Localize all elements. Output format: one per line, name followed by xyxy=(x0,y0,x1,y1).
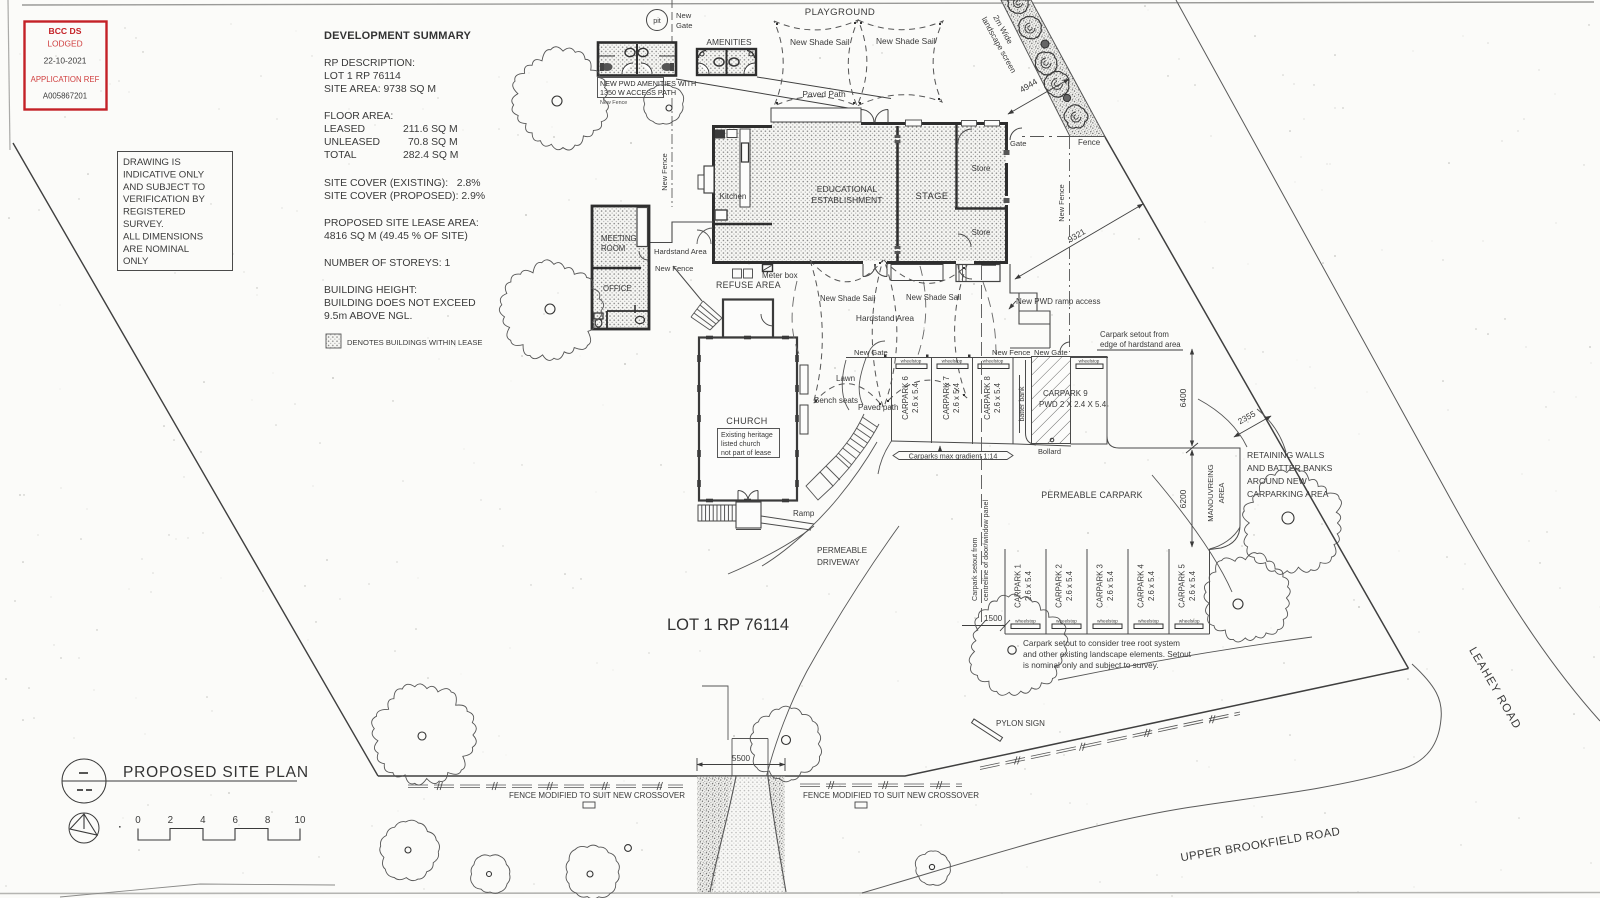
svg-text:ARE NOMINAL: ARE NOMINAL xyxy=(123,244,190,255)
svg-text:PERMEABLE: PERMEABLE xyxy=(817,546,868,555)
svg-text:2.6 x 5.4: 2.6 x 5.4 xyxy=(1106,570,1115,601)
svg-text:AMENITIES: AMENITIES xyxy=(706,37,752,47)
svg-text:Carparks max gradient 1:14: Carparks max gradient 1:14 xyxy=(909,452,998,461)
svg-text:EDUCATIONAL: EDUCATIONAL xyxy=(817,184,878,194)
svg-text:70.8 SQ M: 70.8 SQ M xyxy=(408,137,458,148)
svg-text:wheelstop: wheelstop xyxy=(942,359,963,364)
svg-text:CARPARK 6: CARPARK 6 xyxy=(901,376,910,420)
svg-text:MEETING: MEETING xyxy=(601,234,637,243)
svg-text:Hardstand Area: Hardstand Area xyxy=(856,313,915,323)
svg-text:BUILDING HEIGHT:: BUILDING HEIGHT: xyxy=(324,285,417,296)
svg-text:1500: 1500 xyxy=(984,614,1003,623)
svg-text:and other existing landscape e: and other existing landscape elements. S… xyxy=(1023,650,1192,659)
svg-text:CARPARK 4: CARPARK 4 xyxy=(1137,564,1146,608)
svg-text:211.6 SQ M: 211.6 SQ M xyxy=(403,124,458,135)
svg-text:DENOTES BUILDINGS WITHIN LEASE: DENOTES BUILDINGS WITHIN LEASE xyxy=(347,338,482,347)
svg-text:ESTABLISHMENT: ESTABLISHMENT xyxy=(812,195,884,205)
svg-text:FENCE MODIFIED TO SUIT NEW CRO: FENCE MODIFIED TO SUIT NEW CROSSOVER xyxy=(803,791,979,800)
svg-text:2: 2 xyxy=(168,815,173,826)
svg-text:listed church: listed church xyxy=(721,441,760,448)
svg-text:SITE AREA: 9738 SQ M: SITE AREA: 9738 SQ M xyxy=(324,84,436,95)
svg-text:10: 10 xyxy=(295,815,306,826)
svg-text:REFUSE AREA: REFUSE AREA xyxy=(716,280,781,290)
svg-text:CARPARK 1: CARPARK 1 xyxy=(1014,564,1023,608)
svg-text:LOT 1 RP 76114: LOT 1 RP 76114 xyxy=(667,616,789,634)
svg-text:Paved path: Paved path xyxy=(858,403,898,412)
svg-text:New Fence: New Fence xyxy=(600,100,627,106)
svg-text:Paved Path: Paved Path xyxy=(802,89,846,99)
svg-text:New Shade Sail: New Shade Sail xyxy=(790,37,850,47)
svg-text:wheelstop: wheelstop xyxy=(1097,619,1118,624)
svg-text:6400: 6400 xyxy=(1178,388,1188,407)
svg-text:AROUND NEW: AROUND NEW xyxy=(1247,476,1308,486)
svg-text:wheelstop: wheelstop xyxy=(1079,359,1100,364)
svg-text:New Fence: New Fence xyxy=(660,153,669,190)
svg-text:1350 W ACCESS PATH: 1350 W ACCESS PATH xyxy=(600,88,676,97)
svg-text:CARPARK 7: CARPARK 7 xyxy=(942,376,951,420)
svg-text:PWD 2 X 2.4 X 5.4: PWD 2 X 2.4 X 5.4 xyxy=(1039,400,1107,409)
svg-text:TOTAL: TOTAL xyxy=(324,150,357,161)
svg-text:Kitchen: Kitchen xyxy=(720,192,747,201)
svg-text:Meter box: Meter box xyxy=(762,271,798,280)
svg-text:2.6 x 5.4: 2.6 x 5.4 xyxy=(1188,570,1197,601)
svg-text:batter bank: batter bank xyxy=(1019,386,1026,422)
svg-text:Existing heritage: Existing heritage xyxy=(721,432,773,439)
svg-text:FLOOR AREA:: FLOOR AREA: xyxy=(324,111,393,122)
svg-text:A005867201: A005867201 xyxy=(43,92,87,101)
svg-text:Ramp: Ramp xyxy=(793,509,815,518)
svg-text:2.6 x 5.4: 2.6 x 5.4 xyxy=(952,382,961,413)
svg-text:wheelstop: wheelstop xyxy=(1138,619,1159,624)
svg-text:New Fence: New Fence xyxy=(1057,184,1066,221)
svg-text:New Fence: New Fence xyxy=(992,348,1030,357)
svg-text:5500: 5500 xyxy=(732,754,751,763)
svg-text:NUMBER OF STOREYS: 1: NUMBER OF STOREYS: 1 xyxy=(324,258,450,269)
svg-text:AND SUBJECT TO: AND SUBJECT TO xyxy=(123,182,205,193)
svg-text:6200: 6200 xyxy=(1178,489,1188,508)
svg-text:CARPARK 3: CARPARK 3 xyxy=(1096,564,1105,608)
svg-text:Carpark setout from: Carpark setout from xyxy=(1100,330,1169,339)
svg-text:22-10-2021: 22-10-2021 xyxy=(44,56,87,66)
svg-text:AND BATTER BANKS: AND BATTER BANKS xyxy=(1247,463,1333,473)
svg-text:wheelstop: wheelstop xyxy=(1179,619,1200,624)
svg-text:UNLEASED: UNLEASED xyxy=(324,137,380,148)
svg-text:LODGED: LODGED xyxy=(47,39,82,49)
svg-text:Carpark setout to consider tre: Carpark setout to consider tree root sys… xyxy=(1023,639,1180,648)
svg-text:CARPARK 5: CARPARK 5 xyxy=(1177,564,1186,608)
svg-text:2.6 x 5.4: 2.6 x 5.4 xyxy=(1065,570,1074,601)
svg-text:edge of hardstand area: edge of hardstand area xyxy=(1100,340,1181,349)
svg-text:centreline of door/window pane: centreline of door/window panel xyxy=(981,500,990,601)
svg-text:New Fence: New Fence xyxy=(655,264,693,273)
svg-text:New: New xyxy=(676,11,692,20)
svg-text:DRIVEWAY: DRIVEWAY xyxy=(817,558,860,567)
svg-text:Fence: Fence xyxy=(1078,138,1101,147)
svg-text:MANOUVREING: MANOUVREING xyxy=(1206,464,1215,521)
svg-text:DRAWING IS: DRAWING IS xyxy=(123,157,181,168)
svg-text:ROOM: ROOM xyxy=(601,244,625,253)
svg-text:Store: Store xyxy=(972,228,991,237)
svg-text:2.6 x 5.4: 2.6 x 5.4 xyxy=(993,382,1002,413)
svg-text:SITE COVER (EXISTING): 2.8%: SITE COVER (EXISTING): 2.8% xyxy=(324,178,480,189)
svg-text:New Gate: New Gate xyxy=(854,348,888,357)
svg-text:0: 0 xyxy=(135,815,141,826)
svg-text:CARPARK 2: CARPARK 2 xyxy=(1055,564,1064,608)
svg-text:4816 SQ M (49.45 % OF SITE): 4816 SQ M (49.45 % OF SITE) xyxy=(324,231,468,242)
svg-text:Lawn: Lawn xyxy=(836,374,855,383)
svg-text:LOT 1 RP 76114: LOT 1 RP 76114 xyxy=(324,71,401,82)
svg-text:Bench seats: Bench seats xyxy=(814,396,858,405)
svg-text:Bollard: Bollard xyxy=(1038,447,1061,456)
svg-text:Gate: Gate xyxy=(676,21,692,30)
svg-text:APPLICATION REF: APPLICATION REF xyxy=(31,75,100,84)
svg-text:New Shade Sail: New Shade Sail xyxy=(876,36,936,46)
svg-text:Gate: Gate xyxy=(1010,139,1026,148)
svg-text:wheelstop: wheelstop xyxy=(1015,619,1036,624)
svg-text:PERMEABLE CARPARK: PERMEABLE CARPARK xyxy=(1041,490,1143,500)
svg-text:AREA: AREA xyxy=(1217,482,1226,504)
svg-text:ALL DIMENSIONS: ALL DIMENSIONS xyxy=(123,231,203,242)
svg-text:PROPOSED SITE PLAN: PROPOSED SITE PLAN xyxy=(123,764,309,781)
svg-text:wheelstop: wheelstop xyxy=(983,359,1004,364)
svg-text:wheelstop: wheelstop xyxy=(901,359,922,364)
svg-text:9.5m ABOVE NGL.: 9.5m ABOVE NGL. xyxy=(324,311,412,322)
svg-text:INDICATIVE ONLY: INDICATIVE ONLY xyxy=(123,169,205,180)
svg-text:VERIFICATION BY: VERIFICATION BY xyxy=(123,194,206,205)
svg-text:REGISTERED: REGISTERED xyxy=(123,207,185,218)
svg-text:SURVEY.: SURVEY. xyxy=(123,219,164,230)
svg-text:is nominal only and subject to: is nominal only and subject to survey. xyxy=(1023,661,1158,670)
svg-text:2.6 x 5.4: 2.6 x 5.4 xyxy=(1147,570,1156,601)
svg-text:4: 4 xyxy=(200,815,206,826)
svg-text:Hardstand Area: Hardstand Area xyxy=(654,247,708,256)
svg-text:BUILDING DOES NOT EXCEED: BUILDING DOES NOT EXCEED xyxy=(324,298,476,309)
svg-text:282.4 SQ M: 282.4 SQ M xyxy=(403,150,458,161)
svg-text:2.6 x 5.4: 2.6 x 5.4 xyxy=(911,382,920,413)
svg-text:New PWD ramp access: New PWD ramp access xyxy=(1016,297,1100,306)
svg-text:6: 6 xyxy=(232,815,238,826)
svg-text:New Gate: New Gate xyxy=(1034,348,1068,357)
svg-text:pit: pit xyxy=(653,16,661,25)
svg-text:New Shade Sail: New Shade Sail xyxy=(820,294,876,303)
svg-text:RP DESCRIPTION:: RP DESCRIPTION: xyxy=(324,58,415,69)
svg-text:SITE COVER (PROPOSED): 2.9%: SITE COVER (PROPOSED): 2.9% xyxy=(324,191,485,202)
svg-text:Store: Store xyxy=(972,164,991,173)
svg-text:PLAYGROUND: PLAYGROUND xyxy=(805,7,875,18)
svg-text:LEASED: LEASED xyxy=(324,124,365,135)
svg-text:OFFICE: OFFICE xyxy=(603,284,632,293)
svg-text:8: 8 xyxy=(265,815,271,826)
svg-text:BCC DS: BCC DS xyxy=(49,26,82,36)
svg-text:FENCE MODIFIED TO SUIT NEW CRO: FENCE MODIFIED TO SUIT NEW CROSSOVER xyxy=(509,791,685,800)
svg-text:PYLON SIGN: PYLON SIGN xyxy=(996,719,1045,728)
svg-text:CARPARK 9: CARPARK 9 xyxy=(1043,389,1088,398)
svg-text:STAGE: STAGE xyxy=(916,191,949,201)
svg-text:New Shade Sail: New Shade Sail xyxy=(906,293,962,302)
svg-text:Carpark setout from: Carpark setout from xyxy=(970,537,979,601)
svg-text:PROPOSED SITE LEASE AREA:: PROPOSED SITE LEASE AREA: xyxy=(324,218,479,229)
svg-text:CARPARK 8: CARPARK 8 xyxy=(983,376,992,420)
svg-text:ONLY: ONLY xyxy=(123,256,149,267)
svg-text:DEVELOPMENT SUMMARY: DEVELOPMENT SUMMARY xyxy=(324,30,471,42)
svg-text:not part of lease: not part of lease xyxy=(721,450,771,457)
svg-text:CHURCH: CHURCH xyxy=(726,416,767,426)
